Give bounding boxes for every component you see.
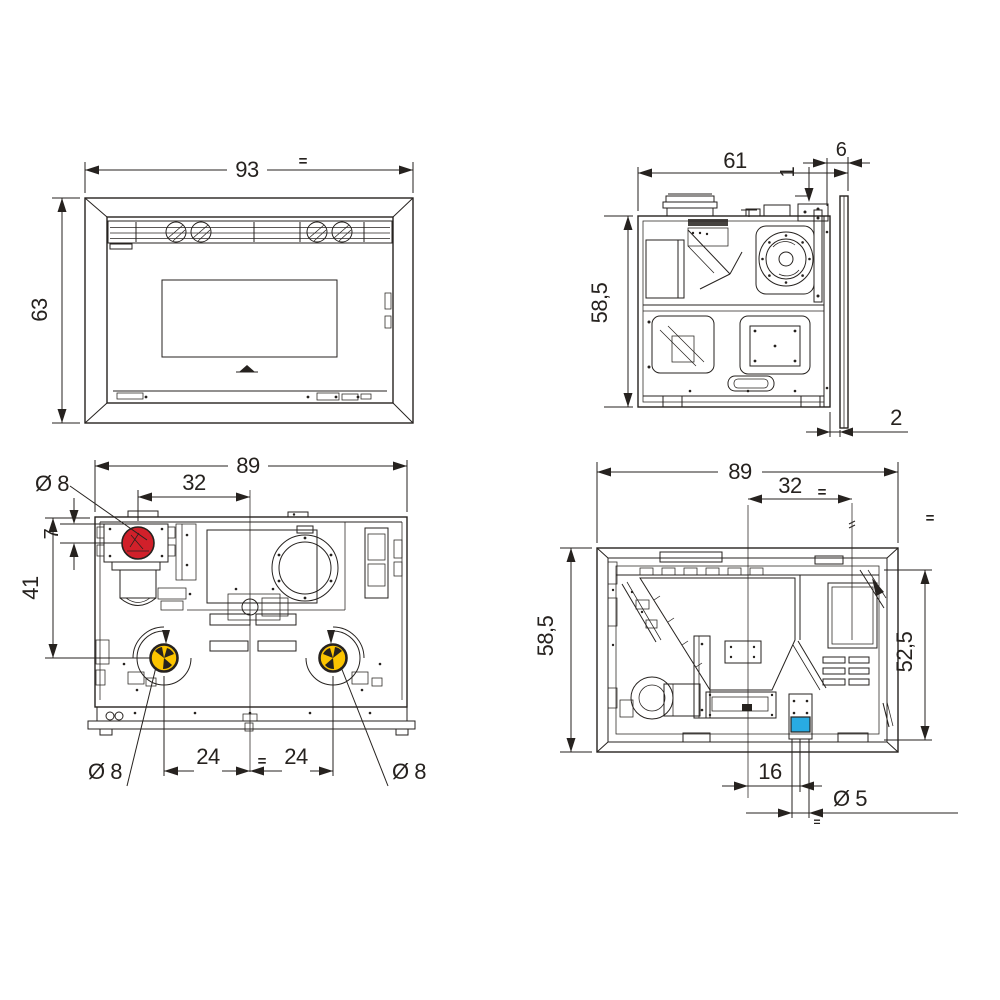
dim-bottom-width: 89 [597,459,898,543]
dim-front-width-equals: = [299,153,308,170]
power-inlet-cyan [791,717,810,732]
dim-rear-duct-spacing: 24 = 24 [164,676,333,776]
dim-rear-width: 89 [95,453,407,512]
front-latch-details [385,293,391,328]
side-left-panel [648,316,715,373]
front-door [113,280,387,391]
dim-bottom-hole-diameter: Ø 5 = [746,786,958,829]
dim-bottom-width-label: 89 [728,459,752,484]
side-top-details [741,204,828,221]
dim-rear-duct-right-label: 24 [284,744,308,769]
side-handle [728,376,774,391]
side-flue-collar [663,194,717,216]
dim-bottom-height: 58,5 [533,548,592,752]
dim-side-gap: 2 [806,405,908,437]
dim-side-height: 58,5 [587,216,633,407]
dim-bottom-hopper-equals: = [818,484,827,501]
dim-bottom-hopper-offset-label: 32 [778,473,802,498]
front-bottom-details [117,393,371,400]
side-right-panel [740,316,810,374]
hopper-lid [828,583,877,648]
side-exhaust-fan [756,210,822,302]
dim-side-height-label: 58,5 [587,282,612,323]
door-handle [239,365,255,372]
rear-dimensions: 89 32 Ø 8 7 41 [18,453,426,786]
dim-rear-flue-offset: 32 [138,470,250,521]
dim-side-gap-label: 2 [890,405,902,430]
auger-motor-group [620,636,776,719]
dim-bottom-hole-diameter-label: Ø 5 [833,786,867,811]
bottom-right-compartment [793,570,893,727]
grille-fan-icons [166,222,352,242]
dim-bottom-inner-height: 52,5 [884,570,932,740]
side-hopper-details [646,219,742,298]
inspection-panel [207,530,317,603]
air-duct-left [133,627,191,685]
dim-rear-duct-right-diameter-label: Ø 8 [392,759,426,784]
dim-rear-flue-diameter-label: Ø 8 [35,471,69,496]
bottom-view [597,503,898,798]
bottom-firebox-top [616,568,879,575]
dim-rear-duct-equals: = [258,753,267,770]
dim-rear-flue-offset-label: 32 [182,470,206,495]
dim-bottom-hole-equals: = [813,815,820,829]
dim-front-width: 93 = [85,153,413,193]
dim-rear-duct-left-label: 24 [196,744,220,769]
side-view [638,194,848,428]
air-duct-right [306,627,364,685]
side-bottom-details [643,390,824,407]
dim-bottom-hole-offset-label: 16 [758,759,782,784]
power-connector-panel [789,694,812,739]
dim-bottom-hole-offset: 16 [722,739,822,818]
door-glass [162,280,337,357]
dim-side-offset: 1 [777,166,814,202]
dim-rear-flue-drop-label: 41 [18,576,43,600]
combustion-fan-ring [272,535,338,601]
bottom-side-equals: = [926,510,935,527]
dim-rear-duct-left-diameter-label: Ø 8 [88,759,122,784]
dim-front-width-label: 93 [235,157,259,182]
side-rear-wall [824,196,848,428]
dim-rear-width-label: 89 [236,453,260,478]
dim-side-depth-label: 61 [723,148,747,173]
dim-side-offset-label: 1 [777,166,799,177]
dim-bottom-inner-height-label: 52,5 [892,631,917,672]
dim-rear-duct-right-diameter: Ø 8 [341,667,426,786]
front-air-grille [108,221,392,249]
side-dimensions: 61 6 1 58,5 2 [587,139,908,437]
pellet-hopper-funnel [622,578,795,690]
dim-bottom-hopper-offset: 32 = [748,473,852,504]
front-view [85,198,413,423]
flue-outlet-assembly [97,524,191,610]
dim-front-height: 63 [27,198,80,423]
technical-drawing-canvas: 93 = 63 [0,0,1000,1000]
dim-front-height-label: 63 [27,298,52,322]
dim-bottom-height-label: 58,5 [533,615,558,656]
dim-side-frame-label: 6 [836,139,847,161]
